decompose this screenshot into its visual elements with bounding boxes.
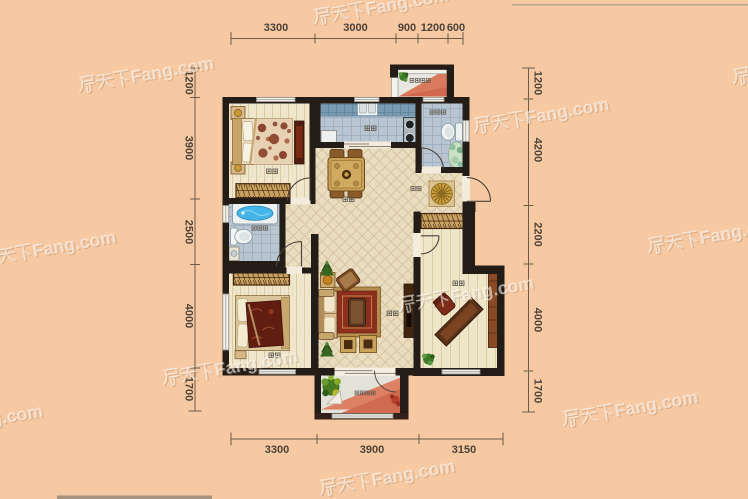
svg-text:1200: 1200 bbox=[532, 71, 544, 95]
svg-text:4000: 4000 bbox=[183, 304, 195, 328]
svg-text:2500: 2500 bbox=[183, 220, 195, 244]
svg-text:3900: 3900 bbox=[360, 444, 384, 456]
svg-text:4000: 4000 bbox=[532, 308, 544, 332]
svg-text:4200: 4200 bbox=[532, 138, 544, 162]
svg-text:600: 600 bbox=[447, 22, 465, 34]
svg-text:3000: 3000 bbox=[343, 22, 367, 34]
svg-text:3150: 3150 bbox=[452, 444, 476, 456]
svg-text:900: 900 bbox=[398, 22, 416, 34]
svg-text:1700: 1700 bbox=[532, 379, 544, 403]
svg-text:3900: 3900 bbox=[183, 136, 195, 160]
svg-text:1200: 1200 bbox=[421, 22, 445, 34]
svg-text:3300: 3300 bbox=[265, 444, 289, 456]
svg-text:3300: 3300 bbox=[264, 22, 288, 34]
svg-text:2200: 2200 bbox=[532, 222, 544, 246]
